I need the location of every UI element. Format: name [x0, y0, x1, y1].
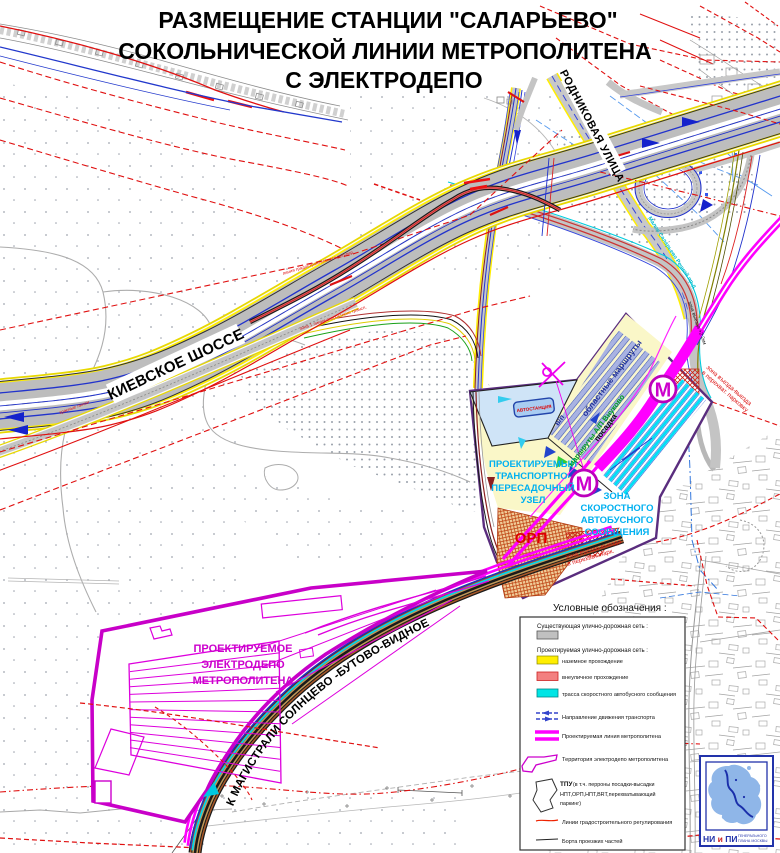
svg-text:ГЕНЕРАЛЬНОГО: ГЕНЕРАЛЬНОГО	[738, 834, 767, 838]
svg-text:Существующая улично-дорожная: Существующая улично-дорожная сеть :	[537, 624, 648, 630]
svg-text:Борта проезжих частей: Борта проезжих частей	[562, 838, 623, 845]
svg-text:наземное прохождение: наземное прохождение	[562, 659, 623, 665]
svg-text:(в т.ч. перроны посадки-высадк: (в т.ч. перроны посадки-высадки	[573, 782, 654, 788]
svg-text:Проектируемая улично-дорожная: Проектируемая улично-дорожная сеть :	[537, 648, 648, 654]
svg-text:трасса скоростного автобусного: трасса скоростного автобусного сообщения	[562, 692, 676, 698]
svg-text:МЕТРОПОЛИТЕНА: МЕТРОПОЛИТЕНА	[193, 675, 294, 687]
svg-text:Проектируемая линия метрополит: Проектируемая линия метрополитена	[562, 734, 662, 740]
svg-text:АВТОБУСНОГО: АВТОБУСНОГО	[581, 515, 654, 526]
svg-text:НПТ,ОРП,НПТ,BRT,перехватывающи: НПТ,ОРП,НПТ,BRT,перехватывающий	[560, 791, 655, 798]
svg-text:Линии градостроительного регул: Линии градостроительного регулирования	[562, 820, 672, 826]
svg-text:Условные обозначения :: Условные обозначения :	[553, 602, 667, 614]
svg-text:ЗОНА: ЗОНА	[604, 491, 631, 502]
svg-text:ПРОЕКТИРУЕМЫЙ: ПРОЕКТИРУЕМЫЙ	[489, 458, 577, 470]
svg-text:СОКОЛЬНИЧЕСКОЙ ЛИНИИ МЕТРОПОЛИ: СОКОЛЬНИЧЕСКОЙ ЛИНИИ МЕТРОПОЛИТЕНА	[118, 37, 651, 64]
svg-text:ПЕРЕСАДОЧНЫЙ: ПЕРЕСАДОЧНЫЙ	[491, 482, 575, 494]
svg-text:ЭЛЕКТРОДЕПО: ЭЛЕКТРОДЕПО	[201, 659, 285, 671]
svg-text:паркинг): паркинг)	[560, 801, 581, 807]
svg-text:M: M	[655, 380, 672, 402]
svg-text:внеуличное прохождение: внеуличное прохождение	[562, 675, 628, 681]
svg-text:ПРОЕКТИРУЕМОЕ: ПРОЕКТИРУЕМОЕ	[193, 643, 292, 655]
svg-text:СКОРОСТНОГО: СКОРОСТНОГО	[581, 503, 654, 514]
svg-text:ТРАНСПОРТНО-: ТРАНСПОРТНО-	[495, 471, 571, 482]
svg-text:ТПУ: ТПУ	[560, 781, 573, 788]
svg-text:УЗЕЛ: УЗЕЛ	[521, 495, 546, 506]
svg-text:С ЭЛЕКТРОДЕПО: С ЭЛЕКТРОДЕПО	[285, 67, 482, 93]
svg-text:РАЗМЕЩЕНИЕ СТАНЦИИ "САЛАРЬЕВО": РАЗМЕЩЕНИЕ СТАНЦИИ "САЛАРЬЕВО"	[158, 7, 617, 33]
svg-text:M: M	[576, 474, 593, 496]
svg-text:Территория электродепо метропо: Территория электродепо метрополитена	[562, 757, 669, 763]
svg-text:ОРП: ОРП	[515, 530, 547, 547]
svg-text:ПЛАНА МОСКВЫ: ПЛАНА МОСКВЫ	[738, 839, 767, 843]
svg-text:СООБЩЕНИЯ: СООБЩЕНИЯ	[585, 527, 650, 538]
svg-text:Направление движения транспорт: Направление движения транспорта	[562, 715, 656, 721]
svg-text:НИ и ПИ: НИ и ПИ	[703, 834, 737, 844]
